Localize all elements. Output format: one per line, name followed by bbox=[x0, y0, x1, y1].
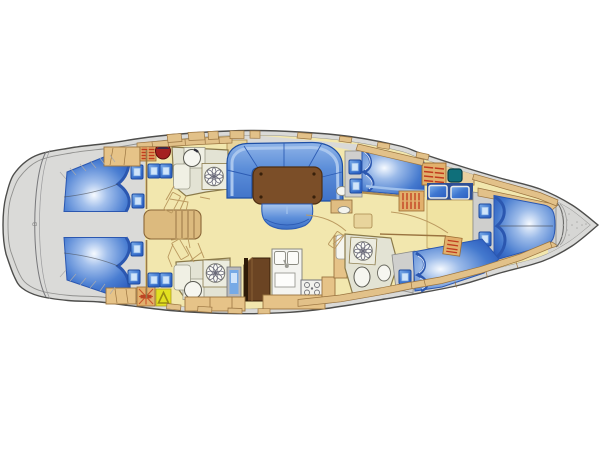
svg-text:B: B bbox=[33, 222, 39, 226]
